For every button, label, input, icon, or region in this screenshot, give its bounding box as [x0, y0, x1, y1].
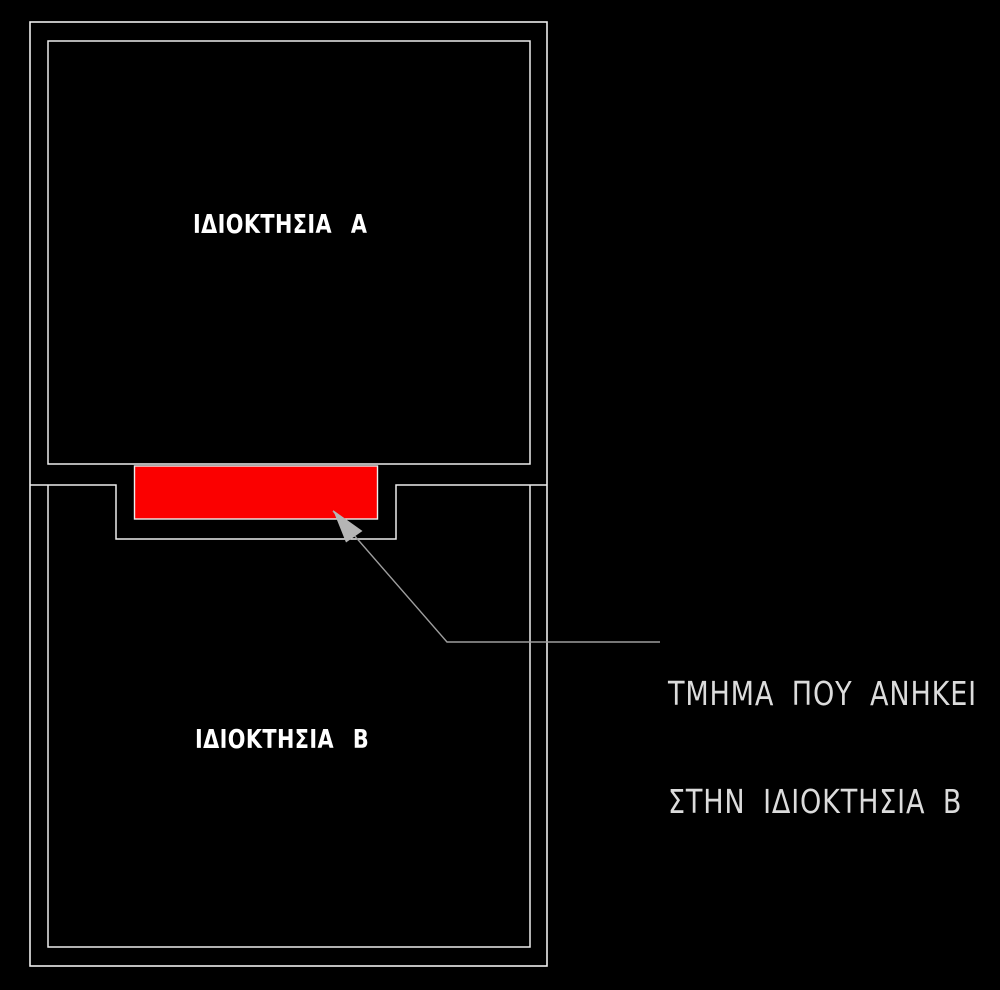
property-b-label: ΙΔΙΟΚΤΗΣΙΑ Β: [195, 727, 369, 753]
annotation-text: ΤΜΗΜΑ ΠΟΥ ΑΝΗΚΕΙ ΣΤΗΝ ΙΔΙΟΚΤΗΣΙΑ Β: [668, 604, 977, 892]
cad-canvas[interactable]: ΙΔΙΟΚΤΗΣΙΑ Α ΙΔΙΟΚΤΗΣΙΑ Β ΤΜΗΜΑ ΠΟΥ ΑΝΗΚ…: [0, 0, 1000, 990]
annotation-line1: ΤΜΗΜΑ ΠΟΥ ΑΝΗΚΕΙ: [668, 676, 977, 712]
property-a-boundary: [48, 41, 530, 464]
disputed-section-highlight[interactable]: [135, 466, 378, 519]
leader-line: [333, 511, 660, 642]
property-a-label: ΙΔΙΟΚΤΗΣΙΑ Α: [193, 212, 367, 238]
annotation-line2: ΣΤΗΝ ΙΔΙΟΚΤΗΣΙΑ Β: [668, 784, 977, 820]
property-b-boundary: [48, 485, 530, 947]
